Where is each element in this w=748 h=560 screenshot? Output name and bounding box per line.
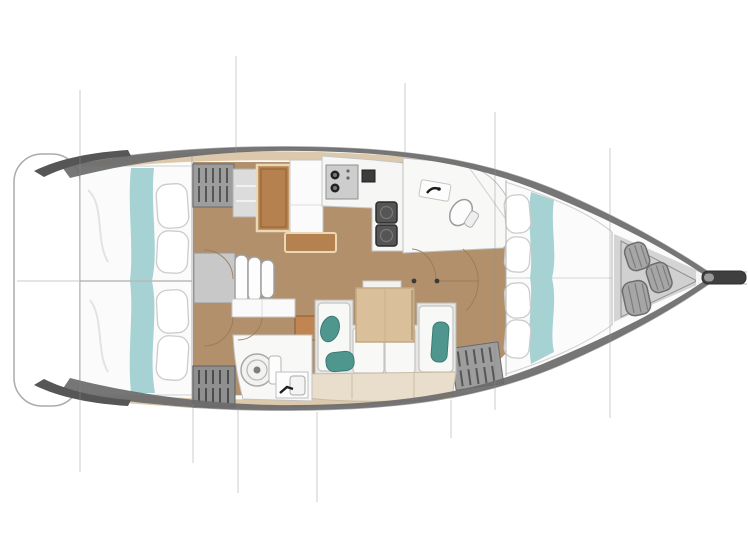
bowsprit: [702, 271, 747, 284]
saloon-table: [356, 281, 414, 342]
stove: [326, 165, 358, 199]
locker-aft-top: [193, 164, 234, 207]
aft-head-faucet-dot: [437, 187, 441, 191]
yacht-floorplan-canvas: [0, 0, 748, 560]
anchor-roller: [704, 274, 714, 282]
galley-oven: [362, 170, 375, 182]
chart-table: [257, 165, 290, 231]
transom-platform: [14, 154, 80, 406]
vberth-runner: [529, 192, 554, 364]
nav-cabinet: [290, 160, 323, 236]
companionway-steps: [235, 255, 274, 303]
aft-cabins: [80, 152, 192, 406]
floorplan-svg: [0, 0, 748, 560]
day-head-sink: [276, 372, 308, 398]
nav-bench: [285, 233, 336, 252]
day-head-cabinet: [232, 299, 295, 317]
nav-seat: [233, 169, 259, 217]
companionway-base: [194, 253, 235, 303]
day-head-toilet: [241, 354, 281, 386]
